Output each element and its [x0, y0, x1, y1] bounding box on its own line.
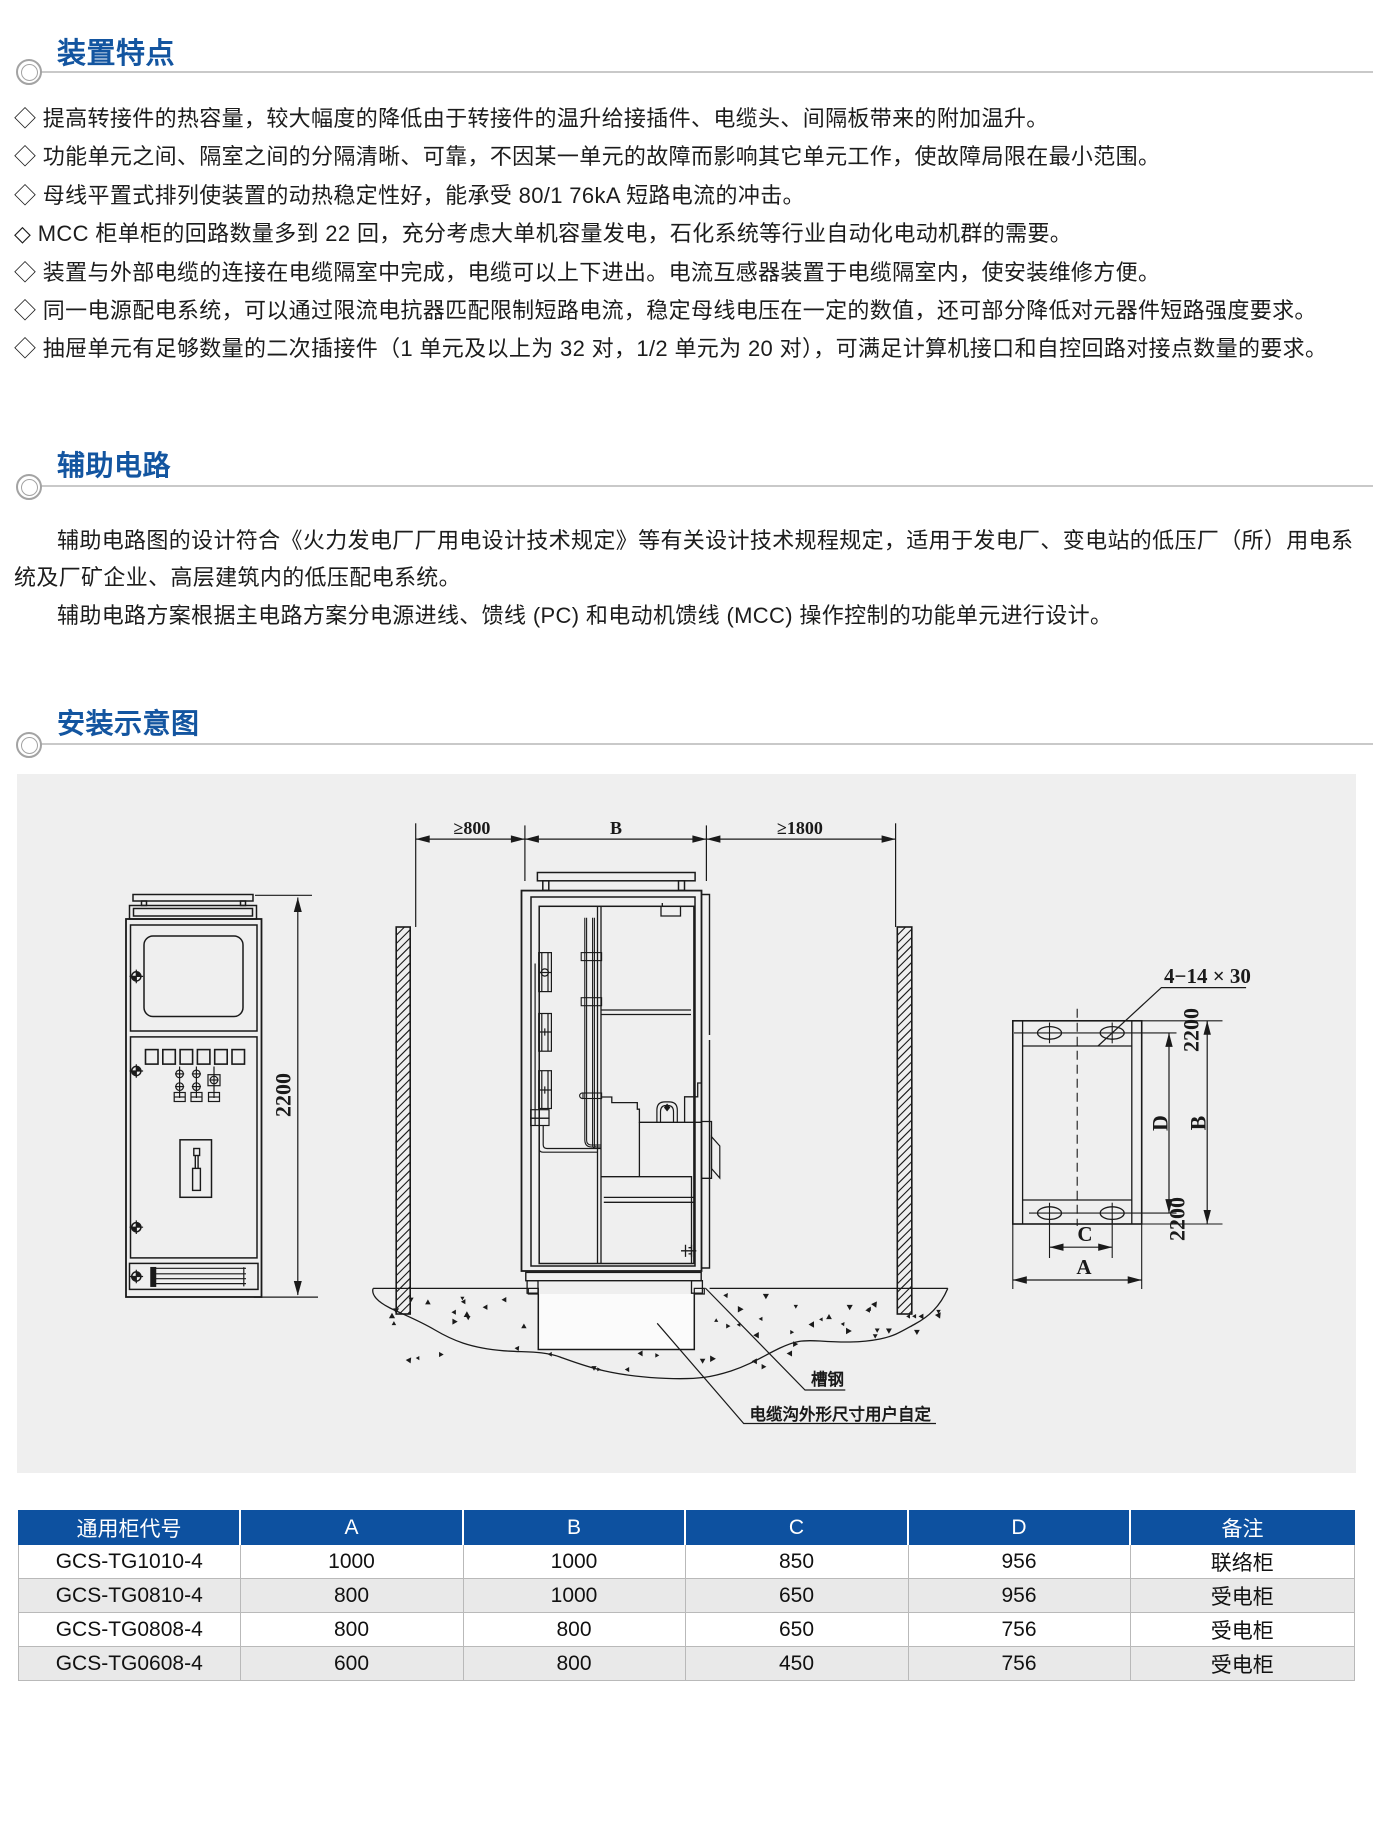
svg-text:B: B — [610, 818, 622, 838]
svg-text:C: C — [1077, 1222, 1092, 1246]
svg-text:D: D — [1148, 1115, 1173, 1131]
svg-text:电缆沟外形尺寸用户自定: 电缆沟外形尺寸用户自定 — [750, 1404, 932, 1424]
svg-text:A: A — [1076, 1255, 1092, 1279]
svg-text:2200: 2200 — [1165, 1197, 1190, 1241]
svg-text:B: B — [1186, 1115, 1211, 1130]
svg-text:槽钢: 槽钢 — [811, 1369, 844, 1389]
svg-text:2200: 2200 — [271, 1073, 296, 1117]
svg-text:4−14 × 30: 4−14 × 30 — [1164, 964, 1251, 988]
svg-text:2200: 2200 — [1179, 1008, 1204, 1052]
svg-text:≥800: ≥800 — [454, 818, 491, 838]
svg-text:≥1800: ≥1800 — [777, 818, 823, 838]
